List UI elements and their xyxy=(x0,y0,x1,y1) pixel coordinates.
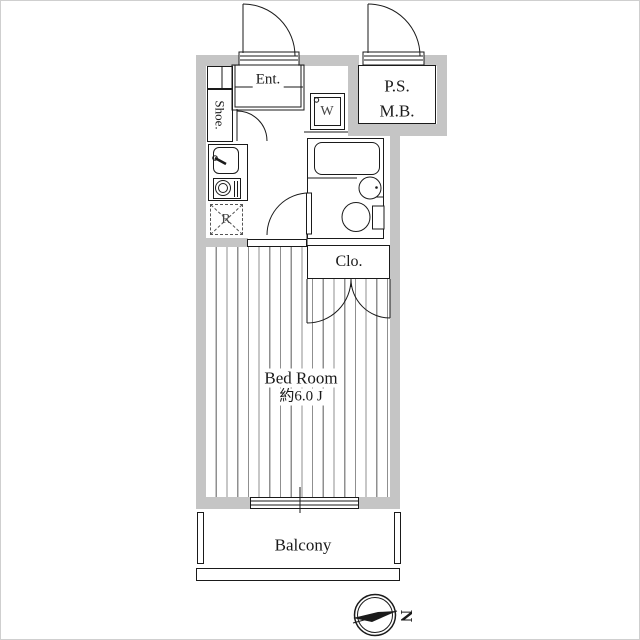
closet-doors xyxy=(307,279,390,323)
ps-door xyxy=(363,4,424,65)
bathroom-fixtures xyxy=(307,177,384,232)
compass-north-label: N xyxy=(397,610,416,623)
label-refrigerator: R xyxy=(221,213,230,227)
washer-tap-icon xyxy=(314,98,318,102)
misc-lines xyxy=(222,67,348,247)
label-bedroom-area: 約6.0 J xyxy=(276,389,325,406)
label-pipe-space: P.S. xyxy=(384,78,410,95)
entrance-door xyxy=(239,4,299,65)
label-shoe: Shoe. xyxy=(214,100,227,129)
bathroom-door xyxy=(267,193,312,235)
burner-icon xyxy=(216,181,231,196)
compass: N xyxy=(353,595,416,636)
label-meter-box: M.B. xyxy=(380,103,415,120)
label-washer: W xyxy=(320,105,333,119)
kitchen-fixtures xyxy=(213,156,238,197)
floor-plan: N Ent. Shoe. P.S. M.B. W R Clo. Bed Room… xyxy=(0,0,640,640)
label-bedroom-name: Bed Room xyxy=(261,369,340,388)
label-entrance: Ent. xyxy=(253,72,284,89)
toilet-tank xyxy=(373,206,385,229)
toilet-bowl xyxy=(342,203,370,232)
window-details xyxy=(251,487,358,513)
wash-basin xyxy=(359,177,381,199)
label-closet: Clo. xyxy=(335,254,362,270)
label-balcony: Balcony xyxy=(275,537,332,554)
